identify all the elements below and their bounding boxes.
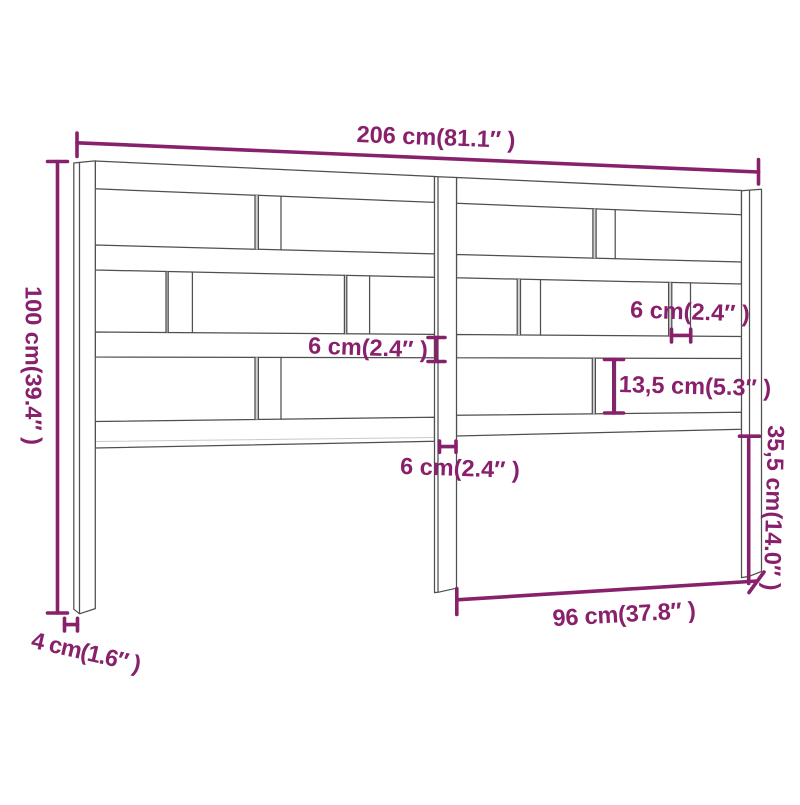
svg-text:6 cm(2.4″ ): 6 cm(2.4″ ) xyxy=(630,296,751,327)
svg-text:35,5 cm(14.0″ ): 35,5 cm(14.0″ ) xyxy=(759,425,789,591)
svg-text:206 cm(81.1″ ): 206 cm(81.1″ ) xyxy=(356,121,516,153)
svg-text:96 cm(37.8″ ): 96 cm(37.8″ ) xyxy=(552,597,696,631)
svg-text:6 cm(2.4″ ): 6 cm(2.4″ ) xyxy=(308,332,429,362)
svg-text:13,5 cm(5.3″ ): 13,5 cm(5.3″ ) xyxy=(619,371,772,401)
svg-text:4 cm(1.6″ ): 4 cm(1.6″ ) xyxy=(29,627,143,677)
svg-text:6 cm(2.4″ ): 6 cm(2.4″ ) xyxy=(400,453,521,483)
svg-text:100 cm(39.4″ ): 100 cm(39.4″ ) xyxy=(21,286,47,445)
